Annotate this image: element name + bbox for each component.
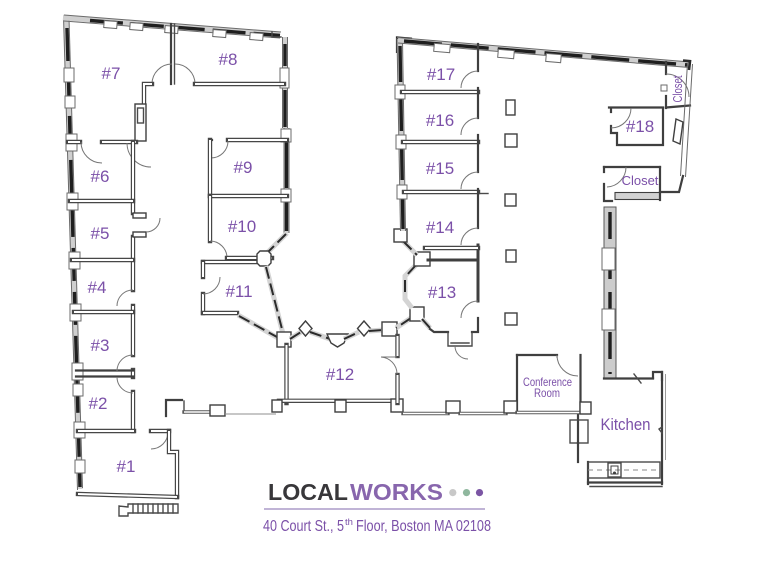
svg-text:#6: #6	[91, 167, 110, 186]
svg-text:WORKS: WORKS	[350, 479, 443, 505]
svg-text:#1: #1	[117, 457, 136, 476]
svg-text:#16: #16	[426, 111, 454, 130]
svg-text:#14: #14	[426, 218, 454, 237]
svg-text:#17: #17	[427, 65, 455, 84]
svg-text:#18: #18	[626, 117, 654, 136]
svg-text:#8: #8	[219, 50, 238, 69]
svg-text:#7: #7	[102, 64, 121, 83]
svg-text:th: th	[345, 517, 353, 528]
svg-text:#10: #10	[228, 217, 256, 236]
svg-text:#2: #2	[89, 394, 108, 413]
svg-text:#13: #13	[428, 283, 456, 302]
svg-text:#5: #5	[91, 224, 110, 243]
svg-text:#9: #9	[234, 158, 253, 177]
svg-text:#12: #12	[326, 365, 354, 384]
svg-text:#15: #15	[426, 159, 454, 178]
svg-text:#4: #4	[88, 278, 107, 297]
svg-text:Kitchen: Kitchen	[601, 415, 651, 434]
svg-text:Closet: Closet	[670, 75, 685, 102]
svg-text:Room: Room	[534, 386, 560, 400]
svg-text:#11: #11	[225, 282, 252, 301]
svg-text:#3: #3	[91, 336, 110, 355]
svg-text:LOCAL: LOCAL	[268, 479, 348, 505]
svg-text:Closet: Closet	[622, 173, 659, 188]
svg-text:Floor, Boston MA 02108: Floor, Boston MA 02108	[356, 518, 491, 535]
svg-text:40 Court St., 5: 40 Court St., 5	[263, 518, 344, 535]
